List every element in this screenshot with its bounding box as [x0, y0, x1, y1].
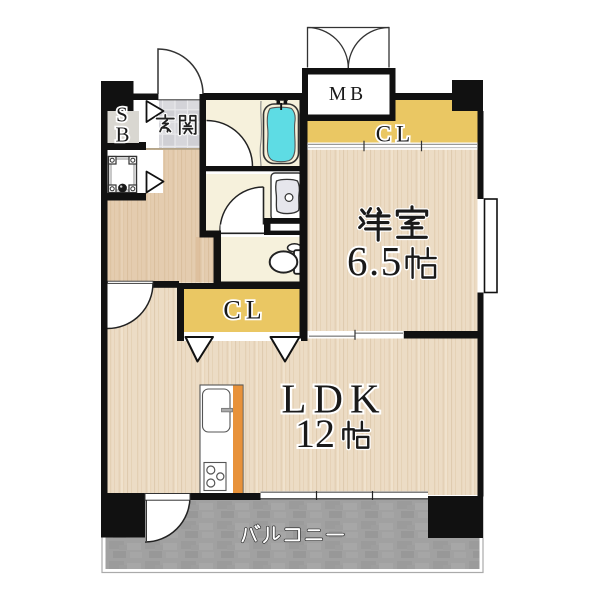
svg-text:CL: CL	[376, 122, 415, 147]
svg-text:CL: CL	[223, 296, 266, 325]
svg-text:12: 12	[295, 411, 335, 456]
svg-text:B: B	[115, 123, 129, 147]
svg-text:MB: MB	[329, 84, 367, 105]
svg-text:6.5: 6.5	[347, 238, 403, 284]
